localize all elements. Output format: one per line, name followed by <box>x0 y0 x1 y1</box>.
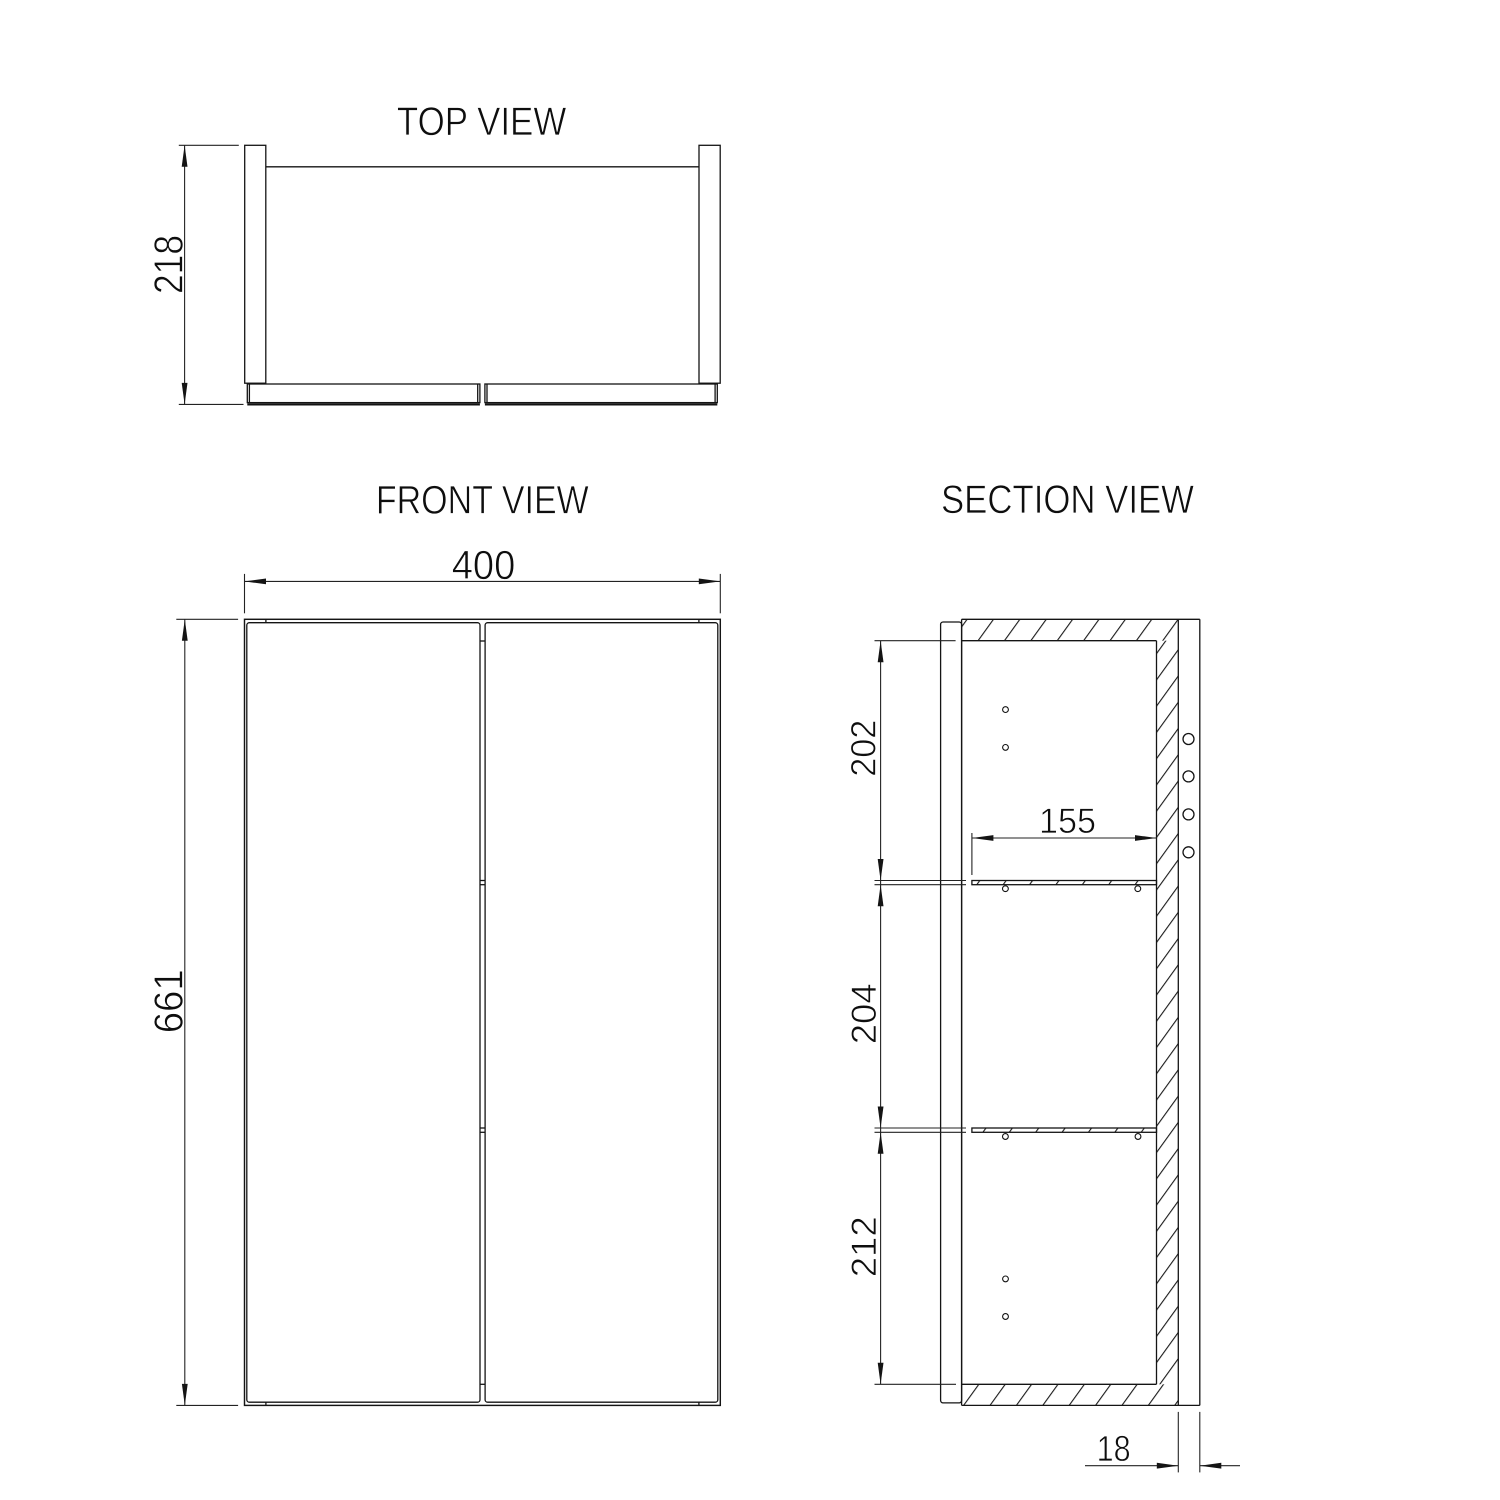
svg-text:202: 202 <box>845 720 884 777</box>
svg-text:FRONT VIEW: FRONT VIEW <box>376 479 589 523</box>
svg-text:SECTION VIEW: SECTION VIEW <box>941 478 1194 522</box>
svg-text:155: 155 <box>1039 802 1096 841</box>
svg-text:661: 661 <box>146 969 192 1033</box>
svg-text:212: 212 <box>845 1216 884 1277</box>
svg-text:218: 218 <box>146 235 192 294</box>
svg-text:TOP VIEW: TOP VIEW <box>397 100 567 144</box>
svg-text:18: 18 <box>1097 1428 1131 1469</box>
svg-text:204: 204 <box>845 983 884 1044</box>
svg-text:400: 400 <box>452 542 516 588</box>
